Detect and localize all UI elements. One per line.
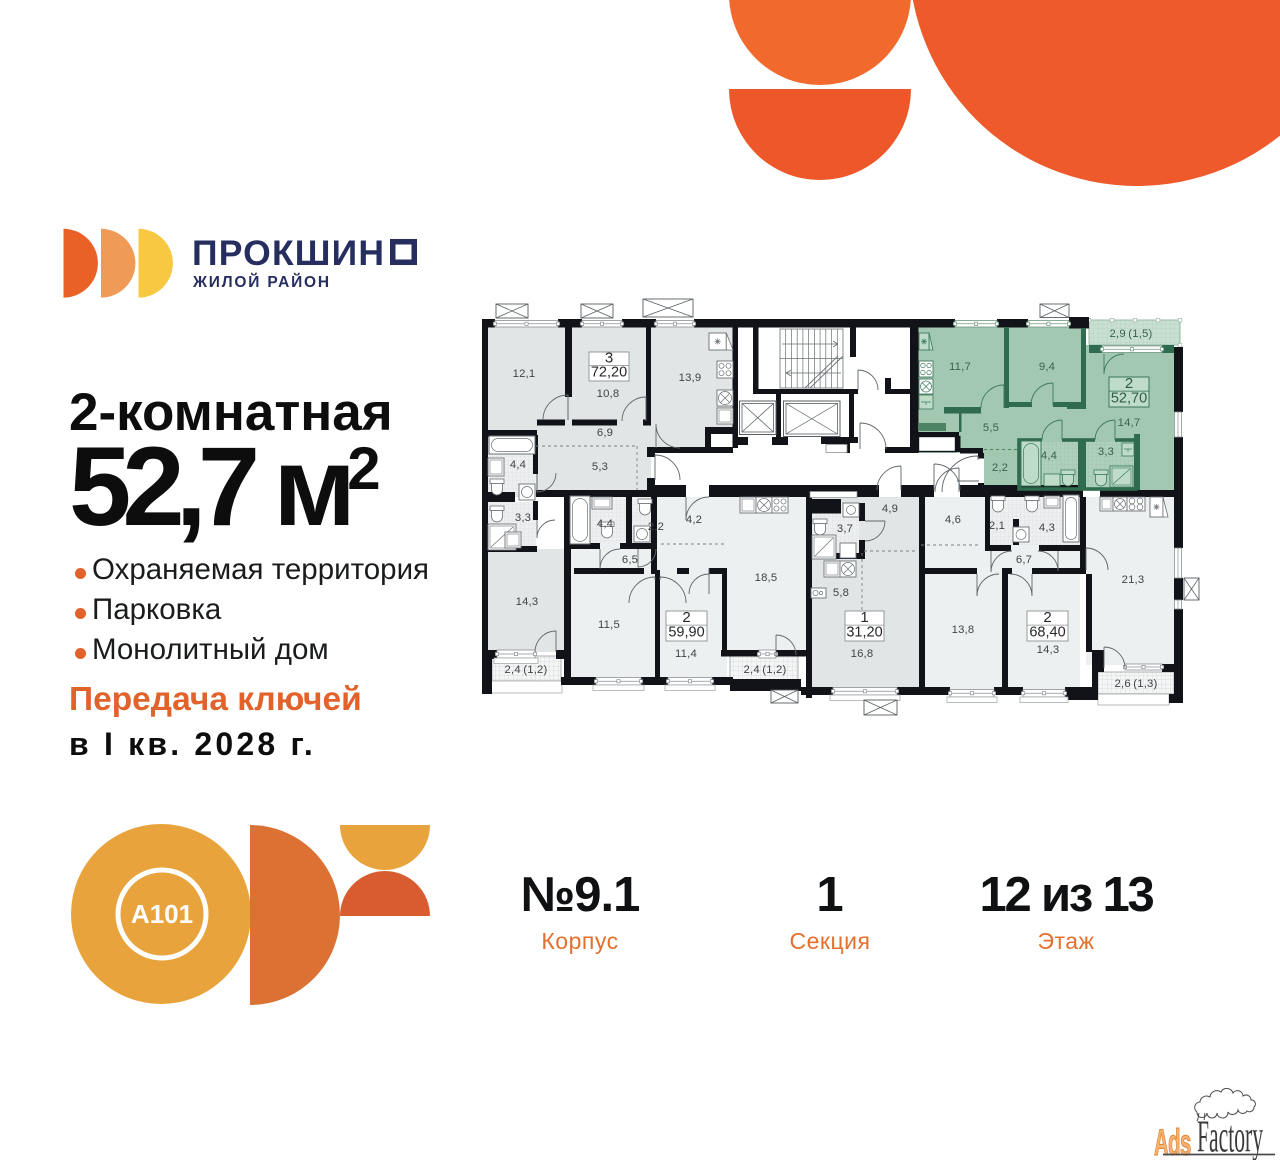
svg-text:6,9: 6,9 — [597, 427, 613, 439]
svg-text:5,3: 5,3 — [592, 461, 608, 473]
svg-text:3,3: 3,3 — [1098, 446, 1114, 458]
svg-text:4,6: 4,6 — [945, 514, 961, 526]
svg-text:2,9 (1,5): 2,9 (1,5) — [1110, 328, 1153, 340]
svg-text:2,4 (1,2): 2,4 (1,2) — [744, 664, 787, 676]
svg-text:Factory: Factory — [1197, 1111, 1263, 1160]
svg-text:11,7: 11,7 — [949, 361, 971, 373]
svg-text:6,7: 6,7 — [1016, 554, 1032, 566]
svg-text:A101: A101 — [131, 899, 193, 929]
svg-text:4,4: 4,4 — [1041, 450, 1057, 462]
svg-text:31,20: 31,20 — [846, 625, 882, 641]
svg-text:10,8: 10,8 — [597, 388, 620, 400]
svg-text:ПРОКШИН: ПРОКШИН — [192, 233, 385, 273]
svg-text:5,8: 5,8 — [833, 587, 849, 599]
svg-text:3,7: 3,7 — [837, 523, 853, 535]
svg-text:4,9: 4,9 — [882, 503, 898, 515]
svg-text:4,4: 4,4 — [510, 459, 526, 471]
svg-text:13,9: 13,9 — [679, 372, 702, 384]
svg-text:72,20: 72,20 — [591, 365, 627, 381]
svg-text:2,4 (1,2): 2,4 (1,2) — [505, 664, 548, 676]
svg-text:2,6 (1,3): 2,6 (1,3) — [1115, 678, 1158, 690]
svg-text:2,2: 2,2 — [648, 521, 664, 533]
svg-text:21,3: 21,3 — [1122, 574, 1145, 586]
svg-text:14,3: 14,3 — [1037, 644, 1060, 656]
svg-text:12,1: 12,1 — [513, 368, 536, 380]
svg-text:2,2: 2,2 — [992, 462, 1008, 474]
svg-text:ЖИЛОЙ РАЙОН: ЖИЛОЙ РАЙОН — [192, 273, 331, 291]
svg-text:4,2: 4,2 — [686, 514, 702, 526]
svg-text:11,5: 11,5 — [598, 619, 620, 631]
svg-text:14,3: 14,3 — [516, 596, 539, 608]
svg-text:4,3: 4,3 — [1039, 522, 1055, 534]
svg-text:18,5: 18,5 — [755, 572, 778, 584]
svg-text:59,90: 59,90 — [668, 625, 704, 641]
svg-text:14,7: 14,7 — [1118, 417, 1141, 429]
svg-text:5,5: 5,5 — [983, 422, 999, 434]
svg-text:68,40: 68,40 — [1029, 625, 1065, 641]
svg-text:11,4: 11,4 — [675, 648, 697, 660]
svg-text:13,8: 13,8 — [952, 624, 975, 636]
svg-text:4,4: 4,4 — [597, 518, 613, 530]
svg-text:9,4: 9,4 — [1039, 361, 1055, 373]
svg-text:3,3: 3,3 — [515, 512, 531, 524]
svg-text:6,5: 6,5 — [622, 554, 638, 566]
svg-text:16,8: 16,8 — [851, 648, 874, 660]
svg-text:52,70: 52,70 — [1111, 391, 1147, 407]
svg-text:2,1: 2,1 — [989, 520, 1005, 532]
